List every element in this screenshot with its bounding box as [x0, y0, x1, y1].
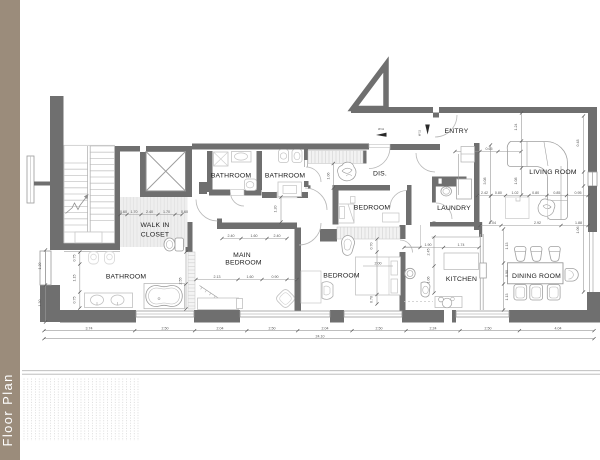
svg-text:LIVING ROOM: LIVING ROOM — [529, 169, 577, 176]
svg-text:MAIN: MAIN — [233, 252, 251, 259]
svg-text:1.13: 1.13 — [505, 294, 509, 301]
svg-text:3.74: 3.74 — [86, 326, 93, 330]
svg-text:BATHROOM: BATHROOM — [106, 274, 147, 281]
svg-text:1.20: 1.20 — [38, 263, 42, 270]
svg-text:1.08: 1.08 — [514, 178, 518, 185]
svg-text:1.24: 1.24 — [514, 124, 518, 131]
svg-text:W 11: W 11 — [378, 127, 384, 131]
svg-text:2.50: 2.50 — [485, 326, 492, 330]
svg-text:DIS.: DIS. — [373, 171, 387, 178]
svg-text:2.50: 2.50 — [162, 326, 169, 330]
svg-text:1.60: 1.60 — [251, 234, 258, 238]
svg-text:1.06: 1.06 — [327, 173, 331, 180]
svg-text:0.90: 0.90 — [505, 270, 509, 277]
svg-text:1.70: 1.70 — [163, 210, 170, 214]
svg-text:2.24: 2.24 — [430, 326, 437, 330]
svg-text:1.88: 1.88 — [575, 221, 582, 225]
svg-text:0.70: 0.70 — [370, 243, 374, 250]
svg-text:1.13: 1.13 — [505, 243, 509, 250]
svg-text:0.65: 0.65 — [486, 147, 493, 151]
svg-text:KITCHEN: KITCHEN — [446, 276, 477, 283]
svg-text:0.90: 0.90 — [272, 275, 279, 279]
svg-text:1.74: 1.74 — [458, 243, 465, 247]
svg-text:DINING ROOM: DINING ROOM — [512, 273, 561, 280]
svg-text:2.04: 2.04 — [322, 326, 329, 330]
svg-text:BATHROOM: BATHROOM — [211, 173, 252, 180]
svg-text:1.60: 1.60 — [247, 275, 254, 279]
svg-text:Floor Plan: Floor Plan — [0, 373, 15, 446]
svg-text:BEDROOM: BEDROOM — [354, 205, 391, 212]
svg-text:1.15: 1.15 — [72, 275, 76, 282]
svg-text:1.90: 1.90 — [425, 243, 432, 247]
svg-text:ENTRY: ENTRY — [445, 128, 469, 135]
svg-text:0.80: 0.80 — [495, 191, 502, 195]
svg-text:2.45: 2.45 — [427, 249, 431, 256]
svg-text:4.04: 4.04 — [555, 326, 562, 330]
svg-text:3.08: 3.08 — [483, 178, 487, 185]
svg-text:WALK IN: WALK IN — [140, 222, 169, 229]
svg-text:BATHROOM: BATHROOM — [265, 173, 306, 180]
svg-text:1.04: 1.04 — [489, 221, 496, 225]
svg-text:1.30: 1.30 — [38, 300, 42, 307]
svg-text:BEDROOM: BEDROOM — [225, 260, 262, 267]
svg-text:24.10: 24.10 — [316, 334, 325, 338]
svg-text:0.95: 0.95 — [575, 191, 582, 195]
svg-text:LAUNDRY: LAUNDRY — [437, 205, 471, 212]
svg-text:2.13: 2.13 — [214, 275, 221, 279]
svg-text:BEDROOM: BEDROOM — [323, 273, 360, 280]
svg-text:0.75: 0.75 — [72, 255, 76, 262]
svg-text:2.50: 2.50 — [376, 326, 383, 330]
svg-text:1.20: 1.20 — [274, 206, 278, 213]
svg-text:1.02: 1.02 — [512, 191, 519, 195]
svg-text:2.40: 2.40 — [146, 210, 153, 214]
svg-text:1.70: 1.70 — [131, 210, 138, 214]
svg-text:1.06: 1.06 — [576, 227, 580, 234]
svg-text:1.06: 1.06 — [427, 277, 431, 284]
svg-text:2.92: 2.92 — [534, 221, 541, 225]
svg-text:0.80: 0.80 — [532, 191, 539, 195]
svg-text:CLOSET: CLOSET — [141, 232, 169, 239]
svg-text:0.75: 0.75 — [72, 297, 76, 304]
svg-text:0.70: 0.70 — [370, 296, 374, 303]
svg-text:0.60: 0.60 — [181, 210, 188, 214]
svg-text:2.55: 2.55 — [179, 278, 183, 285]
svg-text:2.40: 2.40 — [228, 234, 235, 238]
svg-text:2.50: 2.50 — [269, 326, 276, 330]
svg-text:2.00: 2.00 — [375, 262, 382, 266]
svg-text:2.42: 2.42 — [481, 191, 488, 195]
svg-text:0.60: 0.60 — [120, 210, 127, 214]
svg-text:0.48: 0.48 — [576, 140, 580, 147]
svg-text:W 11: W 11 — [418, 130, 422, 136]
svg-text:0.85: 0.85 — [553, 191, 560, 195]
svg-text:2.40: 2.40 — [274, 234, 281, 238]
svg-text:2.04: 2.04 — [217, 326, 224, 330]
